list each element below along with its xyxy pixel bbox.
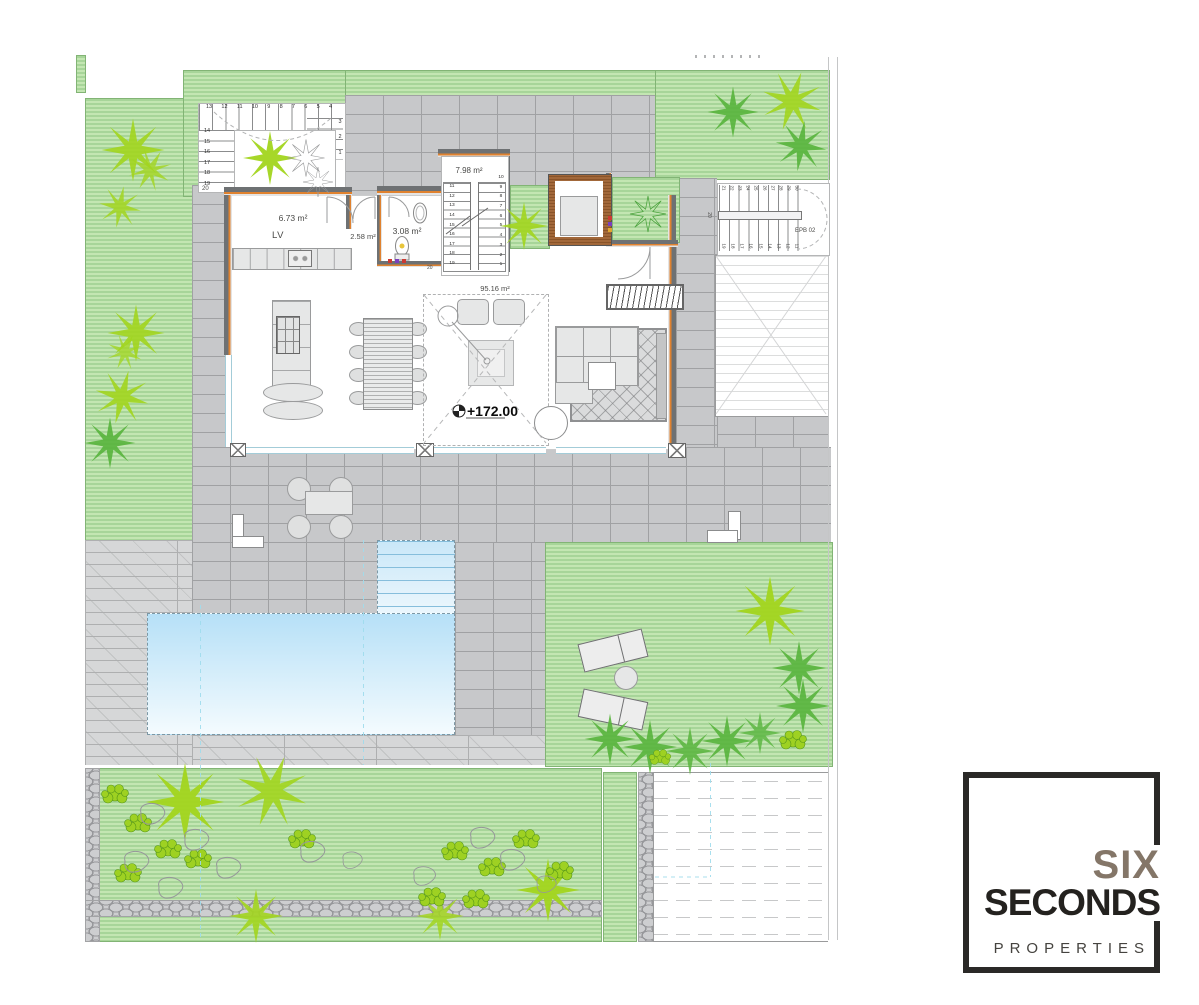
brand-logo-six: SIX [1090, 845, 1163, 885]
rocks [125, 803, 557, 898]
palms [85, 63, 831, 943]
cad-guides [201, 540, 711, 940]
floor-lamp [438, 306, 490, 364]
room-label-hall: 2.58 m² [346, 232, 380, 241]
room-label-lv: LV [272, 230, 284, 241]
interior-stair-step20: 20 [427, 265, 433, 271]
room-label-stair: 7.98 m² [445, 166, 493, 175]
bushes [102, 731, 807, 909]
epb-stair-step20: 20 [706, 212, 712, 218]
floor-plan-sheet: 13121110987654 141516171819 321 11121314… [0, 0, 1199, 1005]
room-label-living: 95.16 m² [470, 284, 520, 293]
void-cross [424, 295, 546, 443]
entrance-stair-step20: 20 [202, 186, 209, 192]
brand-logo: SIX SECONDS PROPERTIES [963, 772, 1160, 973]
pergola-cross [716, 256, 826, 414]
level-label: +172.00 [467, 403, 518, 419]
brand-logo-seconds: SECONDS [981, 884, 1163, 921]
brand-logo-properties: PROPERTIES [994, 941, 1150, 956]
room-label-kitchen: 6.73 m² [264, 213, 322, 223]
epb-stair-label: EPB 02 [795, 228, 815, 234]
room-label-bath: 3.08 m² [385, 226, 429, 236]
